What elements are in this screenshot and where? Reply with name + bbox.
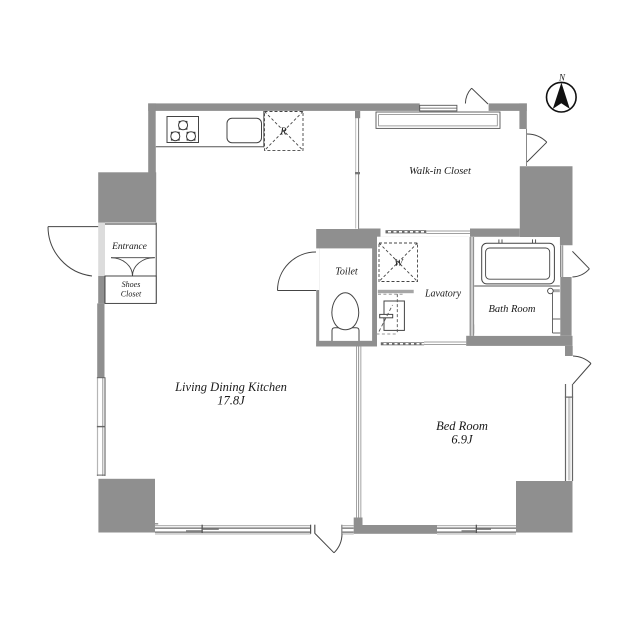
svg-text:Bath Room: Bath Room	[489, 304, 536, 315]
svg-text:N: N	[558, 73, 566, 83]
svg-text:Walk-in Closet: Walk-in Closet	[409, 166, 472, 177]
svg-text:17.8J: 17.8J	[217, 394, 246, 408]
svg-text:6.9J: 6.9J	[451, 433, 474, 447]
svg-text:Entrance: Entrance	[111, 242, 147, 252]
svg-text:R: R	[279, 127, 287, 138]
svg-text:W: W	[394, 258, 404, 269]
svg-text:Living Dining Kitchen: Living Dining Kitchen	[174, 380, 287, 394]
svg-text:Shoes: Shoes	[122, 280, 141, 289]
svg-text:Lavatory: Lavatory	[424, 289, 462, 300]
svg-text:Toilet: Toilet	[335, 267, 358, 278]
svg-text:Closet: Closet	[121, 290, 142, 299]
svg-text:Bed Room: Bed Room	[436, 419, 488, 433]
